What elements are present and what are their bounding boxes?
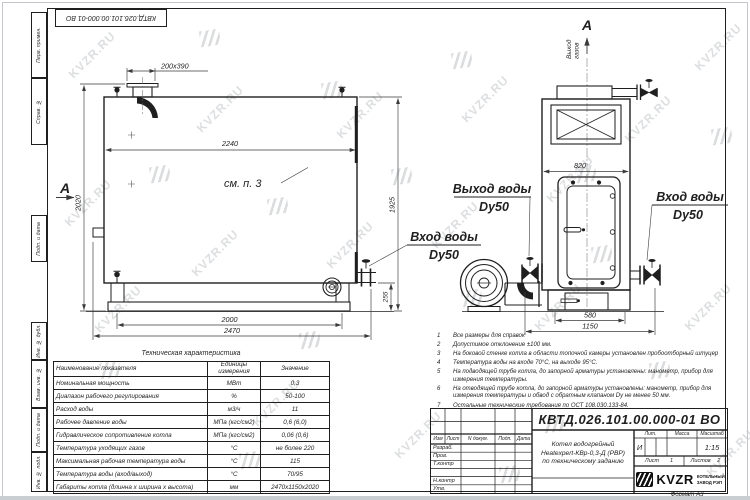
sig-empty [431, 469, 463, 477]
sig-nkontr: Н.контр [431, 477, 463, 485]
spec-cell: Номинальная мощность [54, 377, 208, 390]
spec-row: Гидравлическое сопротивление котлаМПа (к… [54, 429, 330, 442]
spec-col-value: Значение [261, 362, 330, 377]
margin-cell-label: Подп. и дата [36, 222, 42, 256]
note-text: Все размеры для справок [453, 333, 726, 341]
note-item: 2Допустимое отклонение ±100 мм. [437, 342, 726, 350]
note-item: 5На подводящей трубе котла, до запорной … [437, 369, 726, 384]
margin-cell-perv-primen: Перв. примен. [31, 12, 47, 78]
spec-cell: Температура воды (вход/выход) [54, 468, 208, 481]
sig-tkontr: Т.контр [431, 460, 463, 468]
spec-cell: МВт [208, 377, 261, 390]
lit-label: Лит. [634, 430, 667, 438]
spec-row: Рабочее давление водыМПа (кгс/см2)0,6 (6… [54, 416, 330, 429]
lit-value: И [634, 438, 645, 456]
spec-cell: 70/95 [261, 468, 330, 481]
spec-row: Расход водым3/ч11 [54, 403, 330, 416]
margin-cell-inv-dubl: Инв. № дубл. [31, 322, 47, 360]
spec-cell: Расход воды [54, 403, 208, 416]
note-item: 6На отводящей трубе котла, до запорной а… [437, 386, 726, 401]
kvzr-logo-sub1: КОТЕЛЬНЫЙ [697, 474, 725, 479]
spec-cell: 0,6 (6,0) [261, 416, 330, 429]
col-data: Дата [515, 434, 532, 444]
sheets-value: 2 [717, 458, 720, 464]
note-number: 2 [437, 342, 453, 350]
col-podp: Подп. [495, 434, 515, 444]
note-number: 4 [437, 360, 453, 368]
top-stamp: КВТД.026.101.00.000-01 ВО [55, 9, 167, 27]
note-item: 3На боковой стенке котла в области топоч… [437, 351, 726, 359]
spec-cell: °С [208, 468, 261, 481]
spec-cell: Диапазон рабочего регулирования [54, 390, 208, 403]
spec-cell: 50-100 [261, 390, 330, 403]
spec-cell: 0,3 [261, 377, 330, 390]
product-line-3: по техническому заданию [542, 458, 623, 466]
note-item: 4Температура воды на входе 70°С, на выхо… [437, 360, 726, 368]
spec-cell: % [208, 390, 261, 403]
col-izm: Изм [431, 434, 445, 444]
spec-cell: 115 [261, 455, 330, 468]
spec-table: Наименование показателя Единицы измерени… [53, 361, 330, 494]
spec-row: Номинальная мощностьМВт0,3 [54, 377, 330, 390]
spec-cell: Гидравлическое сопротивление котла [54, 429, 208, 442]
spec-cell: не более 220 [261, 442, 330, 455]
spec-row: Температура уходящих газов°Сне более 220 [54, 442, 330, 455]
margin-cell-vzam-inv: Взам. инв. № [31, 360, 47, 408]
spec-row: Габариты котла (длинна х ширина х высота… [54, 481, 330, 494]
margin-cell-label: Инв. № подл. [36, 455, 42, 489]
spec-cell: Габариты котла (длинна х ширина х высота… [54, 481, 208, 494]
spec-row: Температура воды (вход/выход)°С70/95 [54, 468, 330, 481]
spec-col-name: Наименование показателя [54, 362, 208, 377]
sheet-cell: Лист 1 [634, 456, 684, 466]
kvzr-logo-text: KVZR [656, 472, 693, 487]
bottom-strip [0, 496, 750, 500]
margin-cell-label: Справ. № [36, 99, 42, 124]
sheets-label: Листов [691, 458, 711, 464]
note-number: 1 [437, 333, 453, 341]
note-text: Температура воды на входе 70°С, на выход… [453, 360, 726, 368]
spec-cell: °С [208, 442, 261, 455]
note-text: Допустимое отклонение ±100 мм. [453, 342, 726, 350]
note-number: 3 [437, 351, 453, 359]
product-line-2: Heatexpert-КВр-0,3-Д (РВР) [541, 450, 625, 458]
spec-cell: Рабочее давление воды [54, 416, 208, 429]
sig-razrab: Разраб. [431, 444, 463, 452]
spec-cell: м3/ч [208, 403, 261, 416]
margin-cell-label: Инв. № дубл. [36, 324, 42, 358]
doc-number: КВТД.026.101.00.000-01 ВО [532, 409, 727, 430]
scale-value: 1:15 [697, 438, 727, 456]
note-item: 1Все размеры для справок [437, 333, 726, 341]
margin-cell-podp-data-2: Подп. и дата [31, 408, 47, 452]
logo-cell: KVZR КОТЕЛЬНЫЙ ЗАВОД РЭП [634, 466, 727, 493]
spec-cell: Температура уходящих газов [54, 442, 208, 455]
spec-cell: Максимальная рабочая температура воды [54, 455, 208, 468]
product-name: Котел водогрейный Heatexpert-КВр-0,3-Д (… [532, 432, 634, 476]
scale-label: Масштаб [697, 430, 727, 438]
margin-cell-label: Подп. и дата [36, 413, 42, 447]
spec-cell: мм [208, 481, 261, 494]
margin-cell-sprav-no: Справ. № [31, 78, 47, 145]
kvzr-logo-sub2: ЗАВОД РЭП [697, 480, 725, 485]
kvzr-logo-icon [636, 472, 653, 487]
margin-cell-label: Взам. инв. № [36, 367, 42, 401]
note-number: 5 [437, 369, 453, 384]
top-stamp-number: КВТД.026.101.00.000-01 ВО [66, 15, 156, 22]
sheet-value: 1 [670, 458, 673, 464]
sheet-label: Лист [645, 458, 659, 464]
spec-header-row: Наименование показателя Единицы измерени… [54, 362, 330, 377]
product-line-1: Котел водогрейный [552, 441, 615, 449]
margin-cell-podp-data-1: Подп. и дата [31, 215, 47, 262]
spec-cell: МПа (кгс/см2) [208, 416, 261, 429]
margin-cell-inv-podl: Инв. № подл. [31, 452, 47, 492]
drawing-sheet: KVZR.RU KVZR.RU KVZR.RU KVZR.RU KVZR.RU … [0, 0, 750, 500]
note-text: На боковой стенке котла в области топочн… [453, 351, 726, 359]
sheets-cell: Листов 2 [684, 456, 727, 466]
col-ndokum: N докум. [461, 434, 495, 444]
spec-col-units: Единицы измерения [208, 362, 261, 377]
sig-prov: Пров. [431, 452, 463, 460]
spec-cell: 0,06 (0,6) [261, 429, 330, 442]
sig-utv: Утв. [431, 485, 463, 493]
kvzr-logo-subtitle: КОТЕЛЬНЫЙ ЗАВОД РЭП [697, 474, 725, 485]
note-text: На подводящей трубе котла, до запорной а… [453, 369, 726, 384]
spec-row: Максимальная рабочая температура воды°С1… [54, 455, 330, 468]
spec-cell: 2470х1150х2020 [261, 481, 330, 494]
spec-cell: МПа (кгс/см2) [208, 429, 261, 442]
spec-cell: °С [208, 455, 261, 468]
spec-cell: 11 [261, 403, 330, 416]
note-number: 6 [437, 386, 453, 401]
mass-label: Масса [667, 430, 697, 438]
spec-row: Диапазон рабочего регулирования%50-100 [54, 390, 330, 403]
notes-list: 1Все размеры для справок 2Допустимое отк… [437, 333, 726, 412]
spec-table-title: Техническая характеристика [53, 350, 329, 357]
title-block: КВТД.026.101.00.000-01 ВО Изм Лист N док… [430, 408, 728, 494]
note-text: На отводящей трубе котла, до запорной ар… [453, 386, 726, 401]
col-list: Лист [445, 434, 461, 444]
margin-cell-label: Перв. примен. [36, 27, 42, 63]
